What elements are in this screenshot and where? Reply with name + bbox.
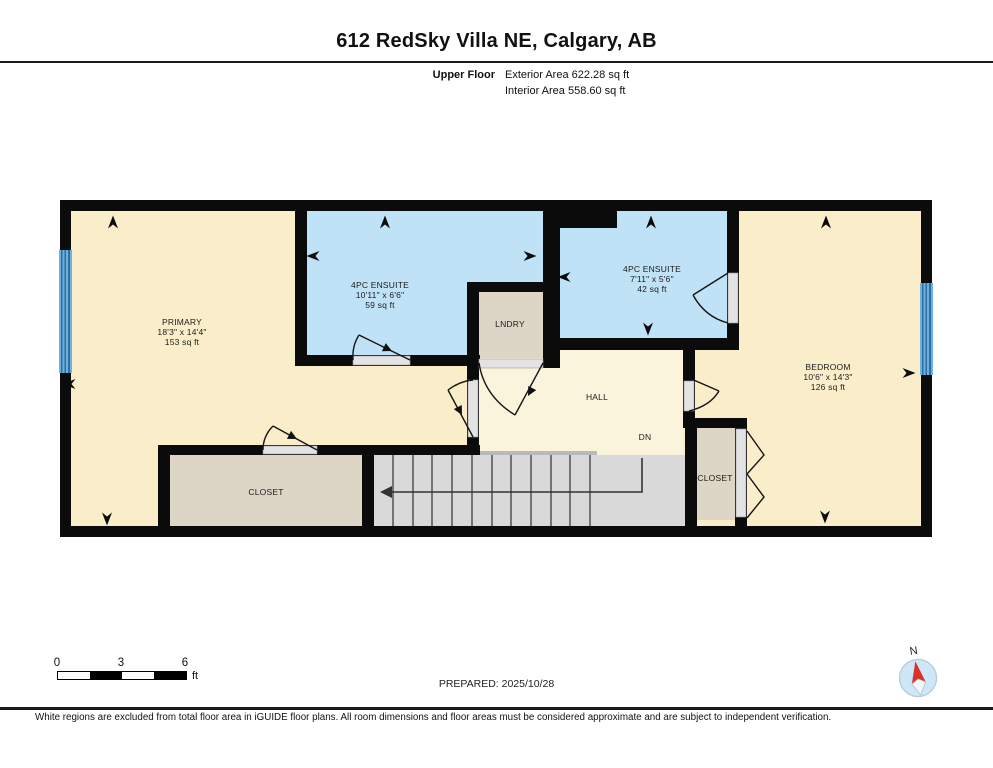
- header-divider: [0, 61, 993, 63]
- room-label-hall: HALL: [586, 392, 608, 402]
- door-swing-ensuite2: [693, 273, 728, 323]
- interior-area-text: Interior Area 558.60 sq ft: [505, 85, 625, 97]
- threshold-bedroom-door: [684, 381, 694, 411]
- room-dims: 10'11" x 6'6": [351, 290, 409, 300]
- threshold-ensuite2-door: [728, 273, 738, 323]
- room-name: LNDRY: [495, 319, 525, 329]
- door-swing-arrowheads: [287, 343, 536, 443]
- room-name: 4PC ENSUITE: [351, 280, 409, 290]
- room-label-closet1: CLOSET: [248, 487, 283, 497]
- footer-divider: [0, 707, 993, 710]
- room-label-primary: PRIMARY 18'3" x 14'4" 153 sq ft: [157, 317, 206, 347]
- stairs-run-arrow: [390, 458, 642, 492]
- room-dims: 18'3" x 14'4": [157, 327, 206, 337]
- room-label-closet2: CLOSET: [697, 473, 732, 483]
- stairs-dn-label: DN: [639, 432, 652, 442]
- floorplan-page: 612 RedSky Villa NE, Calgary, AB Upper F…: [0, 0, 993, 768]
- scale-tick-0: 0: [54, 657, 60, 669]
- exterior-area-text: Exterior Area 622.28 sq ft: [505, 69, 629, 81]
- scale-tick-6: 6: [182, 657, 188, 669]
- scale-tick-3: 3: [118, 657, 124, 669]
- room-area: 59 sq ft: [351, 300, 409, 310]
- stairs-treads: [393, 455, 590, 526]
- room-area: 42 sq ft: [623, 284, 681, 294]
- room-name: CLOSET: [697, 473, 732, 483]
- room-area: 126 sq ft: [803, 382, 852, 392]
- floorplan-canvas: PRIMARY 18'3" x 14'4" 153 sq ft 4PC ENSU…: [60, 200, 932, 537]
- stairs-top-edge: [480, 451, 597, 455]
- room-dims: 7'11" x 5'6": [623, 274, 681, 284]
- room-label-ensuite2: 4PC ENSUITE 7'11" x 5'6" 42 sq ft: [623, 264, 681, 294]
- dn-text: DN: [639, 432, 652, 442]
- threshold-closet1-door: [263, 446, 317, 454]
- room-name: BEDROOM: [803, 362, 852, 372]
- room-label-laundry: LNDRY: [495, 319, 525, 329]
- direction-arrow-icons: [63, 216, 916, 526]
- floorplan-linework: [60, 200, 932, 537]
- stairs-run-arrowhead-icon: [380, 486, 392, 498]
- threshold-closet2-door: [736, 429, 746, 517]
- prepared-date: PREPARED: 2025/10/28: [0, 678, 993, 690]
- room-name: PRIMARY: [157, 317, 206, 327]
- floor-label: Upper Floor: [433, 69, 495, 81]
- room-dims: 10'6" x 14'3": [803, 372, 852, 382]
- room-name: 4PC ENSUITE: [623, 264, 681, 274]
- compass-north-label: N: [909, 645, 919, 658]
- threshold-ensuite1-door: [353, 356, 410, 365]
- room-label-ensuite1: 4PC ENSUITE 10'11" x 6'6" 59 sq ft: [351, 280, 409, 310]
- disclaimer-text: White regions are excluded from total fl…: [35, 712, 955, 723]
- compass-icon: N: [888, 638, 948, 702]
- room-area: 153 sq ft: [157, 337, 206, 347]
- door-bifold-closet2: [747, 431, 764, 518]
- threshold-laundry-door: [479, 359, 543, 368]
- room-name: CLOSET: [248, 487, 283, 497]
- threshold-primary-hall-door: [468, 380, 478, 437]
- page-title: 612 RedSky Villa NE, Calgary, AB: [0, 30, 993, 53]
- room-label-bedroom: BEDROOM 10'6" x 14'3" 126 sq ft: [803, 362, 852, 392]
- room-name: HALL: [586, 392, 608, 402]
